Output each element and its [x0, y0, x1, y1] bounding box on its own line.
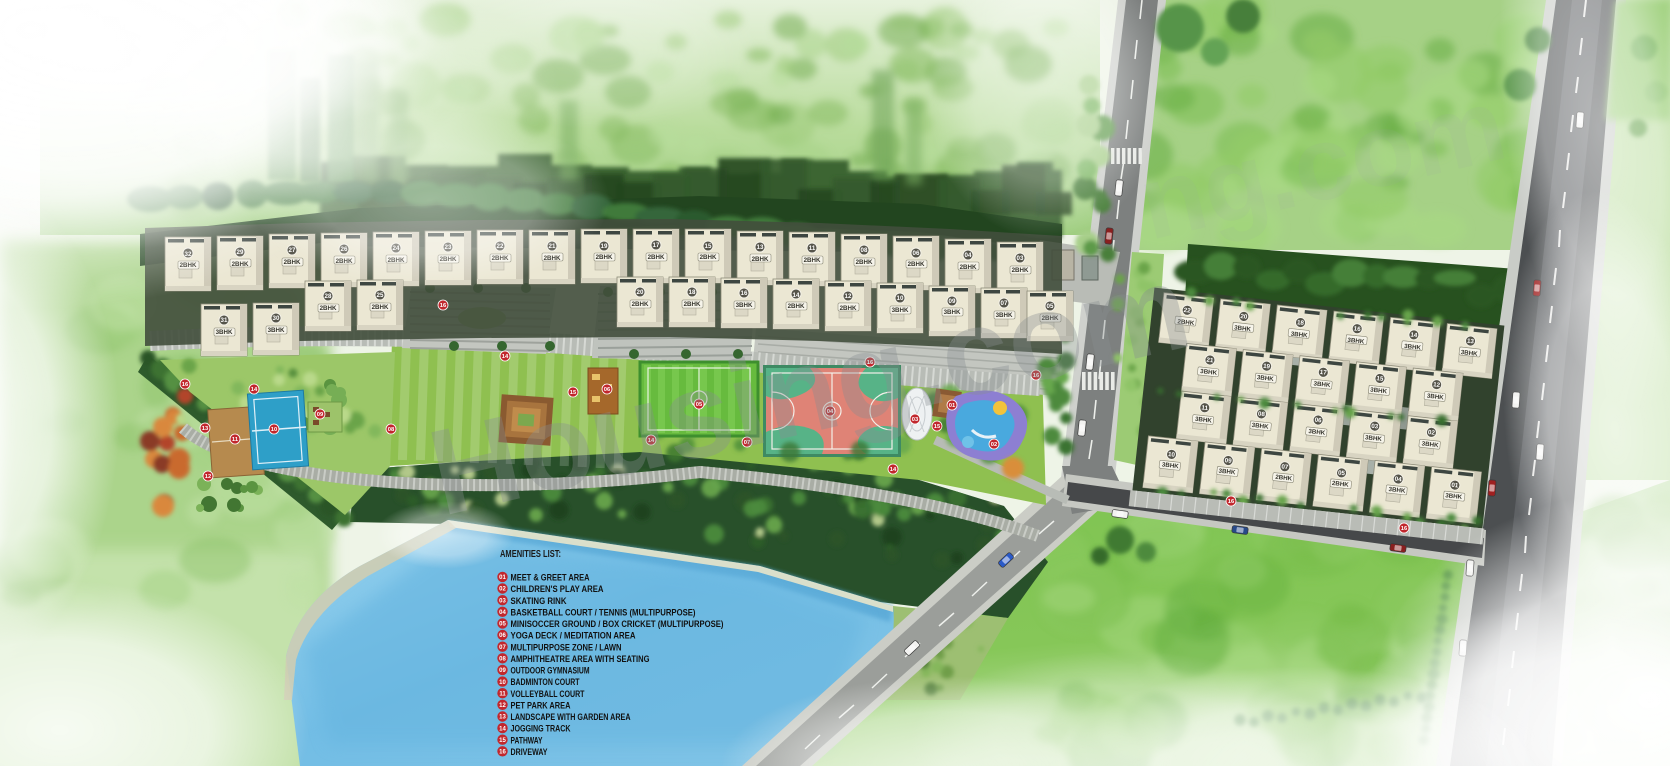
svg-text:25: 25: [377, 292, 384, 299]
svg-text:15: 15: [499, 738, 506, 744]
svg-text:17: 17: [1319, 369, 1327, 377]
svg-text:16: 16: [741, 290, 748, 297]
svg-text:04: 04: [1394, 476, 1402, 484]
svg-text:14: 14: [890, 467, 897, 473]
svg-text:06: 06: [913, 250, 920, 257]
svg-text:01: 01: [499, 575, 506, 581]
svg-text:2BHK: 2BHK: [684, 301, 701, 308]
svg-text:09: 09: [1224, 457, 1232, 465]
svg-text:2BHK: 2BHK: [788, 303, 805, 310]
svg-text:2BHK: 2BHK: [648, 254, 665, 261]
svg-text:16: 16: [1228, 499, 1235, 505]
svg-text:LANDSCAPE WITH GARDEN AREA: LANDSCAPE WITH GARDEN AREA: [511, 712, 631, 723]
svg-text:01: 01: [1451, 482, 1459, 490]
svg-text:20: 20: [1240, 313, 1248, 321]
svg-text:SKATING RINK: SKATING RINK: [511, 596, 567, 607]
svg-text:14: 14: [1410, 332, 1418, 340]
svg-text:04: 04: [965, 252, 972, 259]
svg-text:09: 09: [499, 668, 506, 674]
svg-text:16: 16: [440, 303, 447, 309]
svg-text:15: 15: [1376, 375, 1384, 383]
svg-text:YOGA DECK / MEDITATION AREA: YOGA DECK / MEDITATION AREA: [511, 631, 636, 642]
svg-text:2BHK: 2BHK: [700, 254, 717, 261]
svg-text:08: 08: [499, 657, 506, 663]
svg-text:10: 10: [271, 427, 277, 433]
svg-text:2BHK: 2BHK: [960, 264, 977, 271]
svg-text:2BHK: 2BHK: [632, 301, 649, 308]
svg-text:02: 02: [499, 587, 506, 593]
svg-text:16: 16: [499, 750, 506, 756]
svg-text:13: 13: [202, 426, 209, 432]
svg-text:06: 06: [499, 633, 506, 639]
svg-text:05: 05: [1338, 470, 1346, 478]
svg-text:11: 11: [809, 245, 816, 252]
svg-text:CHILDREN'S PLAY AREA: CHILDREN'S PLAY AREA: [511, 584, 604, 595]
svg-text:16: 16: [1401, 526, 1408, 532]
svg-text:06: 06: [1314, 417, 1322, 425]
svg-text:MULTIPURPOSE ZONE / LAWN: MULTIPURPOSE ZONE / LAWN: [511, 642, 622, 653]
svg-text:12: 12: [1433, 381, 1441, 389]
svg-text:12: 12: [205, 474, 211, 480]
svg-text:AMPHITHEATRE AREA WITH SEATING: AMPHITHEATRE AREA WITH SEATING: [511, 654, 650, 665]
svg-text:03: 03: [1017, 255, 1024, 262]
svg-text:14: 14: [793, 292, 800, 299]
svg-text:JOGGING TRACK: JOGGING TRACK: [511, 724, 571, 735]
svg-text:16: 16: [1353, 325, 1361, 333]
svg-text:3BHK: 3BHK: [736, 302, 753, 309]
svg-text:18: 18: [1297, 319, 1305, 327]
svg-text:13: 13: [499, 715, 506, 721]
svg-text:BADMINTON COURT: BADMINTON COURT: [511, 677, 580, 688]
svg-text:11: 11: [499, 691, 506, 697]
svg-text:14: 14: [251, 387, 258, 393]
svg-text:08: 08: [861, 247, 868, 254]
svg-text:07: 07: [1281, 463, 1289, 471]
svg-text:02: 02: [991, 442, 997, 448]
svg-text:31: 31: [221, 317, 228, 324]
svg-text:03: 03: [1371, 423, 1379, 431]
svg-text:13: 13: [1467, 338, 1475, 346]
svg-text:03: 03: [499, 598, 506, 604]
svg-text:30: 30: [273, 315, 280, 322]
svg-text:07: 07: [499, 645, 506, 651]
svg-text:08: 08: [388, 427, 395, 433]
svg-text:3BHK: 3BHK: [216, 329, 233, 336]
svg-text:14: 14: [502, 354, 509, 360]
svg-text:2BHK: 2BHK: [372, 304, 389, 311]
svg-text:18: 18: [689, 289, 696, 296]
svg-text:2BHK: 2BHK: [856, 259, 873, 266]
svg-text:11: 11: [232, 437, 239, 443]
svg-text:05: 05: [499, 622, 506, 628]
svg-text:BASKETBALL COURT / TENNIS (MUL: BASKETBALL COURT / TENNIS (MULTIPURPOSE): [511, 607, 696, 618]
svg-text:2BHK: 2BHK: [320, 305, 337, 312]
svg-text:12: 12: [845, 293, 852, 300]
svg-text:04: 04: [499, 610, 506, 616]
svg-text:MEET & GREET AREA: MEET & GREET AREA: [511, 573, 590, 584]
svg-text:12: 12: [499, 703, 506, 709]
svg-text:02: 02: [1428, 429, 1436, 437]
svg-text:21: 21: [1206, 357, 1214, 365]
svg-text:16: 16: [182, 382, 189, 388]
svg-text:10: 10: [1168, 451, 1176, 459]
svg-text:13: 13: [757, 244, 764, 251]
svg-text:3BHK: 3BHK: [268, 327, 285, 334]
svg-text:19: 19: [1263, 363, 1271, 371]
svg-text:20: 20: [637, 289, 644, 296]
svg-text:08: 08: [1258, 411, 1266, 419]
svg-text:2BHK: 2BHK: [752, 256, 769, 263]
svg-text:2BHK: 2BHK: [804, 257, 821, 264]
svg-text:17: 17: [653, 242, 660, 249]
svg-text:AMENITIES LIST:: AMENITIES LIST:: [500, 549, 561, 560]
svg-text:DRIVEWAY: DRIVEWAY: [511, 747, 548, 758]
svg-text:19: 19: [601, 243, 608, 250]
svg-text:10: 10: [499, 680, 506, 686]
svg-text:15: 15: [705, 243, 712, 250]
svg-text:PET PARK AREA: PET PARK AREA: [511, 700, 571, 711]
svg-text:2BHK: 2BHK: [908, 261, 925, 268]
svg-text:28: 28: [325, 293, 332, 300]
svg-text:PATHWAY: PATHWAY: [511, 735, 543, 746]
svg-text:09: 09: [317, 412, 324, 418]
svg-text:VOLLEYBALL COURT: VOLLEYBALL COURT: [511, 689, 585, 700]
svg-text:2BHK: 2BHK: [596, 254, 613, 261]
svg-text:14: 14: [499, 726, 506, 732]
svg-text:MINISOCCER GROUND / BOX CRICKE: MINISOCCER GROUND / BOX CRICKET (MULTIPU…: [511, 619, 724, 630]
svg-text:OUTDOOR GYMNASIUM: OUTDOOR GYMNASIUM: [511, 666, 590, 677]
